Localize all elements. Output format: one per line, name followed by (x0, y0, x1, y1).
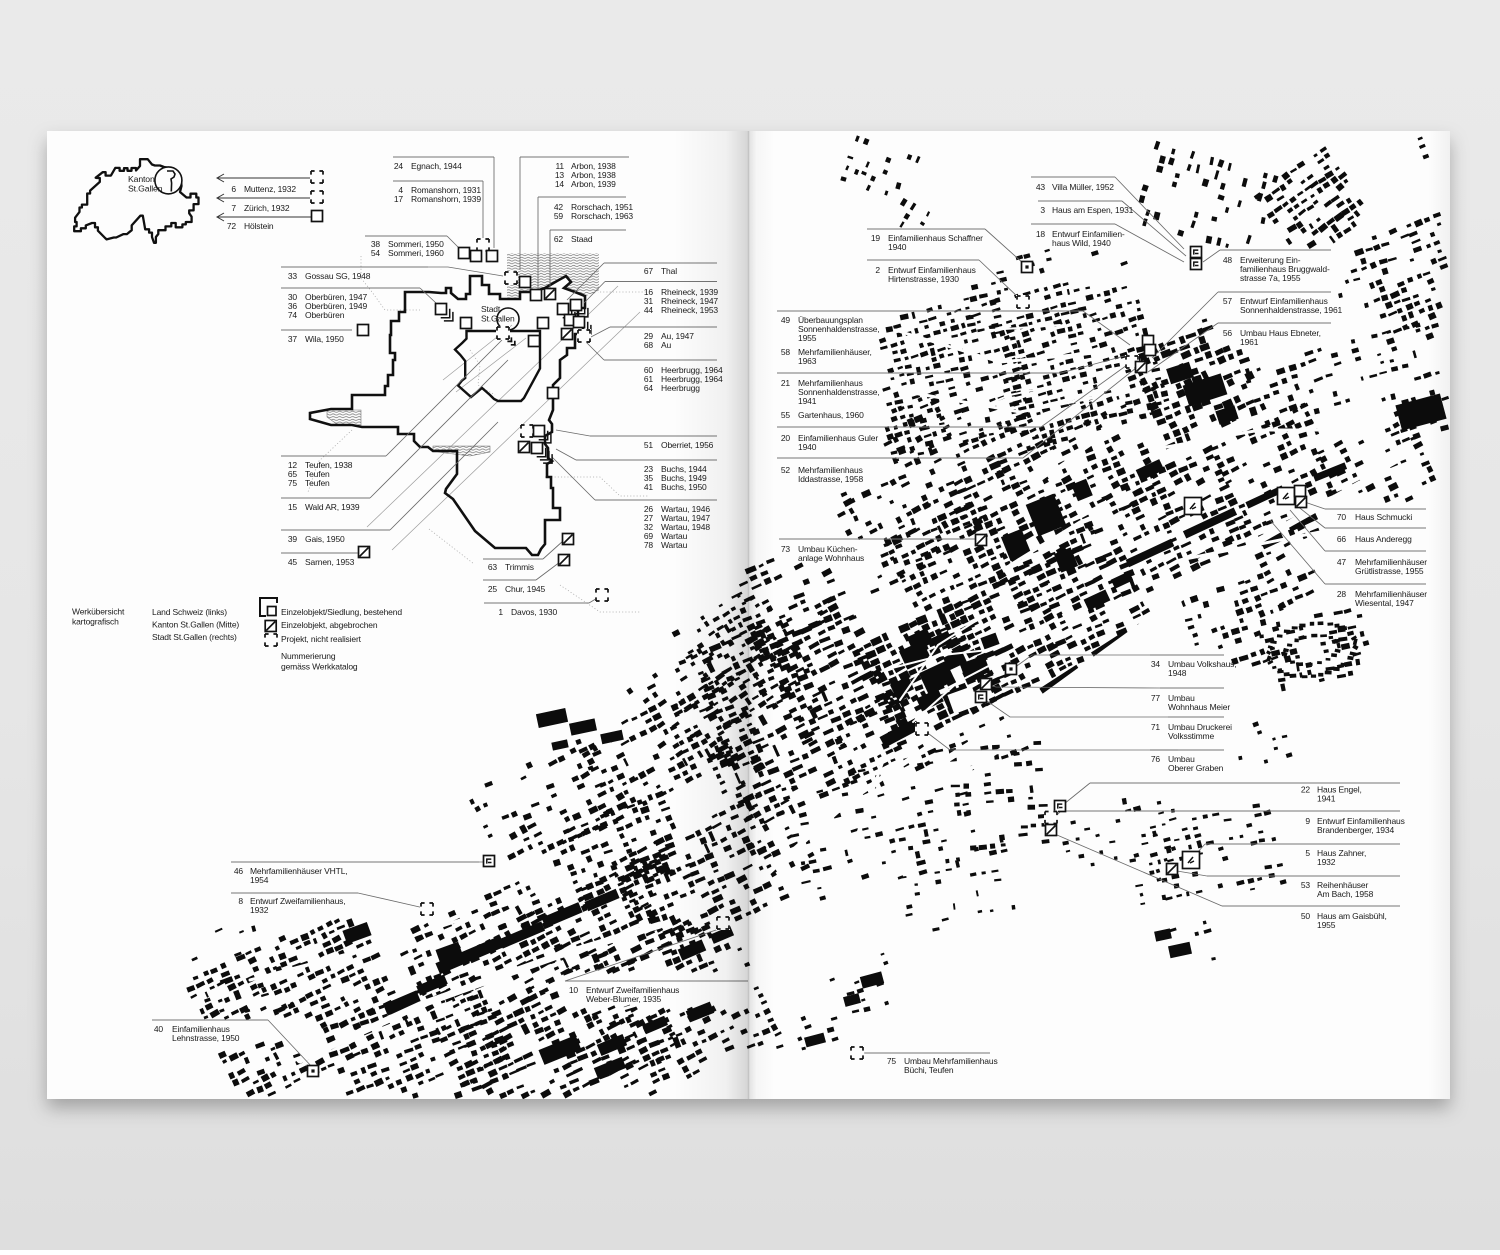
svg-text:1940: 1940 (888, 242, 907, 252)
svg-text:58: 58 (781, 347, 791, 357)
svg-text:Einzelobjekt, abgebrochen: Einzelobjekt, abgebrochen (281, 620, 378, 630)
svg-text:Land Schweiz (links): Land Schweiz (links) (152, 607, 227, 617)
svg-text:73: 73 (781, 544, 791, 554)
svg-text:19: 19 (871, 233, 881, 243)
svg-text:1941: 1941 (1317, 794, 1336, 804)
svg-text:49: 49 (781, 315, 791, 325)
svg-text:74: 74 (288, 310, 298, 320)
svg-text:53: 53 (1301, 880, 1311, 890)
svg-text:57: 57 (1223, 296, 1233, 306)
svg-text:Gais, 1950: Gais, 1950 (305, 534, 345, 544)
svg-text:Sommeri, 1960: Sommeri, 1960 (388, 248, 444, 258)
svg-text:68: 68 (644, 340, 654, 350)
svg-text:Sarnen, 1953: Sarnen, 1953 (305, 557, 355, 567)
svg-text:Davos, 1930: Davos, 1930 (511, 607, 557, 617)
svg-text:Büchi, Teufen: Büchi, Teufen (904, 1065, 954, 1075)
svg-text:9: 9 (1305, 816, 1310, 826)
svg-text:Egnach, 1944: Egnach, 1944 (411, 161, 462, 171)
svg-text:Stadt: Stadt (481, 304, 501, 314)
svg-text:Wald AR, 1939: Wald AR, 1939 (305, 502, 360, 512)
svg-text:8: 8 (238, 896, 243, 906)
svg-text:3: 3 (1040, 205, 1045, 215)
svg-text:64: 64 (644, 383, 654, 393)
svg-text:47: 47 (1337, 557, 1347, 567)
svg-text:66: 66 (1337, 534, 1347, 544)
svg-text:1948: 1948 (1168, 668, 1187, 678)
svg-text:2: 2 (875, 265, 880, 275)
svg-text:Wohnhaus Meier: Wohnhaus Meier (1168, 702, 1230, 712)
svg-text:44: 44 (644, 305, 654, 315)
svg-text:5: 5 (1305, 848, 1310, 858)
svg-text:24: 24 (394, 161, 404, 171)
svg-text:75: 75 (887, 1056, 897, 1066)
svg-text:Romanshorn, 1939: Romanshorn, 1939 (411, 194, 481, 204)
svg-text:56: 56 (1223, 328, 1233, 338)
svg-text:72: 72 (227, 221, 237, 231)
svg-text:Zürich, 1932: Zürich, 1932 (244, 203, 290, 213)
svg-text:33: 33 (288, 271, 298, 281)
svg-text:7: 7 (231, 203, 236, 213)
svg-text:67: 67 (644, 266, 654, 276)
svg-text:54: 54 (371, 248, 381, 258)
svg-text:Muttenz, 1932: Muttenz, 1932 (244, 184, 296, 194)
svg-text:43: 43 (1036, 182, 1046, 192)
svg-text:78: 78 (644, 540, 654, 550)
svg-text:Volksstimme: Volksstimme (1168, 731, 1214, 741)
svg-text:34: 34 (1151, 659, 1161, 669)
svg-text:Haus Schmucki: Haus Schmucki (1355, 512, 1412, 522)
svg-text:1955: 1955 (1317, 920, 1336, 930)
svg-text:40: 40 (154, 1024, 164, 1034)
svg-text:Lehnstrasse, 1950: Lehnstrasse, 1950 (172, 1033, 240, 1043)
svg-text:14: 14 (555, 179, 565, 189)
svg-text:Wiesental, 1947: Wiesental, 1947 (1355, 598, 1414, 608)
svg-text:Projekt, nicht realisiert: Projekt, nicht realisiert (281, 634, 362, 644)
svg-text:45: 45 (288, 557, 298, 567)
svg-text:15: 15 (288, 502, 298, 512)
svg-text:Hölstein: Hölstein (244, 221, 274, 231)
svg-text:kartografisch: kartografisch (72, 617, 119, 627)
svg-text:6: 6 (231, 184, 236, 194)
svg-text:Nummerierung: Nummerierung (281, 651, 336, 661)
svg-text:Villa Müller, 1952: Villa Müller, 1952 (1052, 182, 1114, 192)
svg-text:Teufen: Teufen (305, 478, 330, 488)
svg-text:1963: 1963 (798, 356, 817, 366)
svg-text:Hirtenstrasse, 1930: Hirtenstrasse, 1930 (888, 274, 959, 284)
svg-text:Stadt St.Gallen (rechts): Stadt St.Gallen (rechts) (152, 632, 237, 642)
svg-text:37: 37 (288, 334, 298, 344)
svg-text:25: 25 (488, 584, 498, 594)
svg-text:gemäss Werkkatalog: gemäss Werkkatalog (281, 662, 358, 672)
svg-text:Haus am Espen, 1931: Haus am Espen, 1931 (1052, 205, 1134, 215)
svg-text:Chur, 1945: Chur, 1945 (505, 584, 546, 594)
svg-text:1932: 1932 (250, 905, 269, 915)
svg-text:21: 21 (781, 378, 791, 388)
svg-text:1941: 1941 (798, 396, 817, 406)
svg-text:anlage Wohnhaus: anlage Wohnhaus (798, 553, 864, 563)
svg-text:1: 1 (498, 607, 503, 617)
svg-text:28: 28 (1337, 589, 1347, 599)
svg-text:Grütlistrasse, 1955: Grütlistrasse, 1955 (1355, 566, 1424, 576)
svg-text:Einzelobjekt/Siedlung, bestehe: Einzelobjekt/Siedlung, bestehend (281, 607, 402, 617)
svg-text:39: 39 (288, 534, 298, 544)
svg-text:haus Wild, 1940: haus Wild, 1940 (1052, 238, 1111, 248)
svg-text:St.Gallen: St.Gallen (481, 314, 515, 324)
svg-text:62: 62 (554, 234, 564, 244)
svg-text:1954: 1954 (250, 875, 269, 885)
svg-text:Kanton St.Gallen (Mitte): Kanton St.Gallen (Mitte) (152, 620, 239, 630)
svg-text:17: 17 (394, 194, 404, 204)
svg-text:Gartenhaus, 1960: Gartenhaus, 1960 (798, 410, 864, 420)
svg-text:strasse 7a, 1955: strasse 7a, 1955 (1240, 273, 1301, 283)
svg-text:52: 52 (781, 465, 791, 475)
svg-text:Staad: Staad (571, 234, 593, 244)
svg-text:41: 41 (644, 482, 654, 492)
svg-text:Wila, 1950: Wila, 1950 (305, 334, 344, 344)
svg-text:1932: 1932 (1317, 857, 1336, 867)
svg-text:Gossau SG, 1948: Gossau SG, 1948 (305, 271, 371, 281)
svg-text:Arbon, 1939: Arbon, 1939 (571, 179, 616, 189)
svg-text:18: 18 (1036, 229, 1046, 239)
svg-text:Trimmis: Trimmis (505, 562, 534, 572)
svg-text:10: 10 (569, 985, 579, 995)
svg-text:Haus Anderegg: Haus Anderegg (1355, 534, 1412, 544)
svg-text:Iddastrasse, 1958: Iddastrasse, 1958 (798, 474, 863, 484)
svg-text:59: 59 (554, 211, 564, 221)
svg-text:1940: 1940 (798, 442, 817, 452)
svg-text:Oberer Graben: Oberer Graben (1168, 763, 1224, 773)
svg-text:75: 75 (288, 478, 298, 488)
svg-text:Sonnenhaldenstrasse, 1961: Sonnenhaldenstrasse, 1961 (1240, 305, 1343, 315)
svg-text:50: 50 (1301, 911, 1311, 921)
svg-text:76: 76 (1151, 754, 1161, 764)
svg-text:Brandenberger, 1934: Brandenberger, 1934 (1317, 825, 1394, 835)
svg-text:51: 51 (644, 440, 654, 450)
svg-text:63: 63 (488, 562, 498, 572)
svg-text:1955: 1955 (798, 333, 817, 343)
svg-text:20: 20 (781, 433, 791, 443)
svg-text:Au: Au (661, 340, 672, 350)
svg-text:55: 55 (781, 410, 791, 420)
svg-text:Oberbüren: Oberbüren (305, 310, 345, 320)
svg-text:71: 71 (1151, 722, 1161, 732)
svg-text:1961: 1961 (1240, 337, 1259, 347)
svg-text:St.Gallen: St.Gallen (128, 184, 163, 194)
svg-text:46: 46 (234, 866, 244, 876)
svg-text:Rorschach, 1963: Rorschach, 1963 (571, 211, 633, 221)
svg-text:70: 70 (1337, 512, 1347, 522)
svg-text:Weber-Blumer, 1935: Weber-Blumer, 1935 (586, 994, 662, 1004)
svg-text:Werkübersicht: Werkübersicht (72, 607, 125, 617)
svg-text:Am Bach, 1958: Am Bach, 1958 (1317, 889, 1374, 899)
svg-text:77: 77 (1151, 693, 1161, 703)
svg-text:22: 22 (1301, 785, 1311, 795)
svg-text:Kanton: Kanton (128, 174, 155, 184)
svg-text:48: 48 (1223, 255, 1233, 265)
